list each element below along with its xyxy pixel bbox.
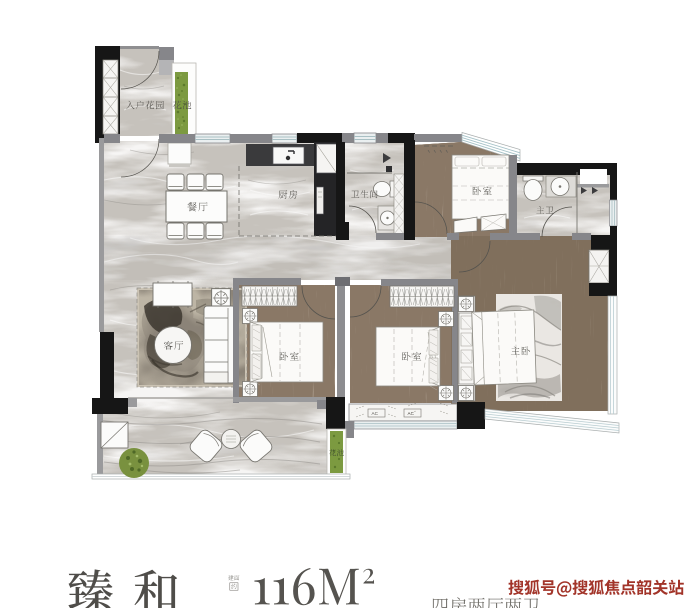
svg-text:AC: AC (408, 411, 415, 416)
svg-text:AC: AC (372, 411, 379, 416)
